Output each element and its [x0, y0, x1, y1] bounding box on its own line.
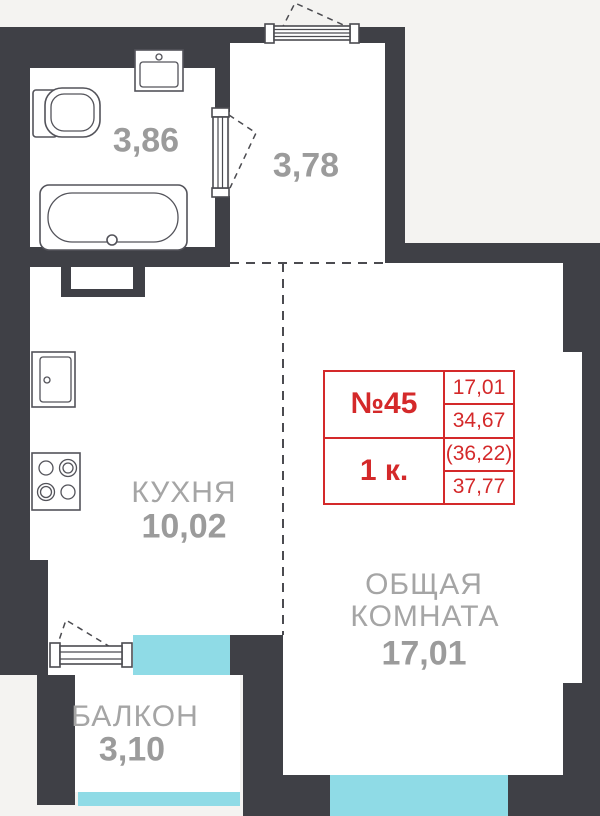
area-value-total: 37,77 [445, 470, 513, 503]
info-card-left-column: №45 1 к. [325, 372, 445, 503]
living-area-label: 17,01 [381, 635, 466, 674]
stove-icon [32, 453, 80, 510]
unit-number: №45 [325, 372, 443, 439]
kitchen-area-label: 10,02 [141, 508, 226, 547]
bathtub-icon [40, 185, 187, 250]
toilet-icon [33, 88, 100, 137]
living-name-line1: ОБЩАЯ [365, 568, 483, 602]
window-icon [133, 635, 230, 675]
floor-plan: 3,86 3,78 КУХНЯ 10,02 ОБЩАЯ КОМНАТА 17,0… [0, 0, 600, 816]
info-card-right-column: 17,01 34,67 (36,22) 37,77 [445, 372, 513, 503]
area-value-living: 17,01 [445, 372, 513, 403]
area-value-apartment: 34,67 [445, 403, 513, 436]
hall-area-label: 3,78 [273, 147, 339, 186]
rooms-count: 1 к. [325, 439, 443, 504]
balcony-name-label: БАЛКОН [71, 700, 199, 734]
vent-shaft-icon [71, 267, 133, 289]
bathroom-area-label: 3,86 [113, 122, 179, 161]
window-icon [330, 775, 508, 816]
living-name-line2: КОМНАТА [350, 600, 499, 634]
kitchen-sink-icon [32, 352, 75, 407]
area-value-with-coefficient: (36,22) [445, 437, 513, 470]
balcony-area-label: 3,10 [99, 731, 165, 770]
apartment-info-card: №45 1 к. 17,01 34,67 (36,22) 37,77 [323, 370, 515, 505]
washbasin-icon [135, 50, 183, 91]
hall-window-icon [265, 3, 359, 43]
kitchen-name-label: КУХНЯ [131, 476, 236, 510]
window-icon [78, 792, 240, 806]
